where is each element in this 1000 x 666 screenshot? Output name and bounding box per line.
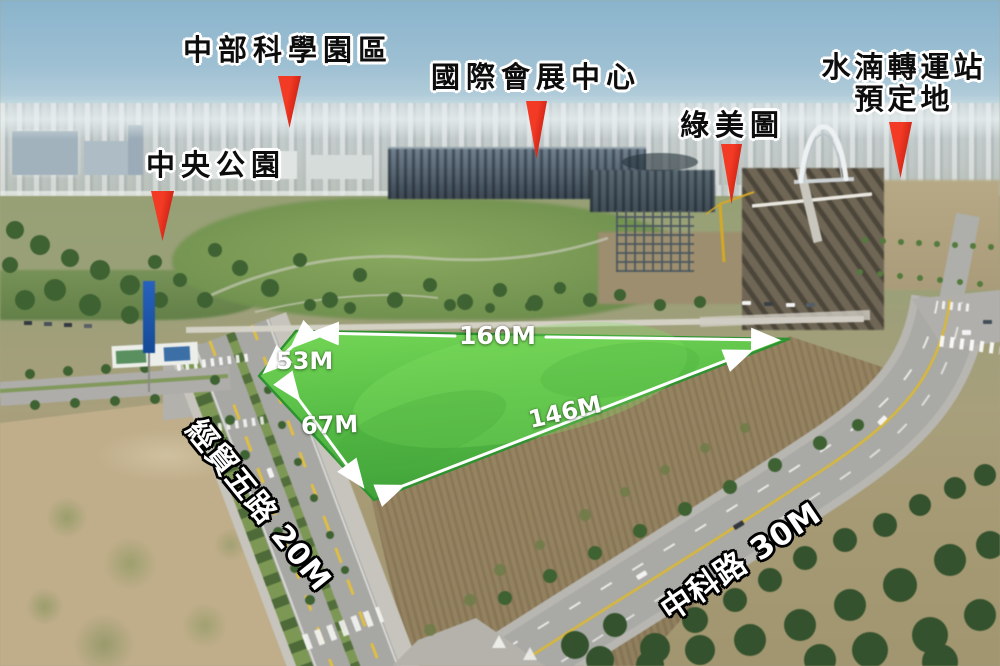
landmark-label-central-park: 中央公園 bbox=[146, 149, 286, 181]
landmark-label-green-museum: 綠美圖 bbox=[680, 109, 785, 141]
measurement-west-edge: 67M bbox=[301, 410, 359, 440]
landmark-label-science-park: 中部科學園區 bbox=[183, 34, 393, 66]
landmark-label-convention-center: 國際會展中心 bbox=[431, 61, 641, 93]
measurement-top-edge: 160M bbox=[459, 321, 536, 350]
landmark-label-shuinan-station: 水湳轉運站 預定地 bbox=[808, 51, 1000, 116]
aerial-photo-map: 160M 53M 67M 146M 中部科學園區 國際會展中心 水湳轉運站 預定… bbox=[0, 0, 1000, 666]
landmark-label-shuinan-line2: 預定地 bbox=[808, 83, 1000, 115]
measurement-northwest-edge: 53M bbox=[276, 347, 333, 375]
landmark-label-shuinan-line1: 水湳轉運站 bbox=[808, 51, 1000, 83]
